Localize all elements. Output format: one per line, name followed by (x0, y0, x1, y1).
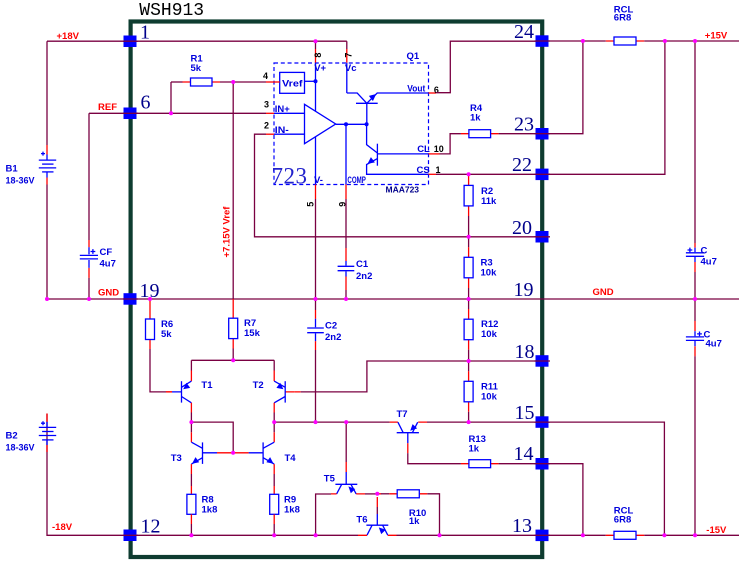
svg-text:11k: 11k (481, 196, 497, 207)
svg-text:T4: T4 (285, 453, 297, 464)
svg-text:1k: 1k (469, 443, 480, 454)
svg-text:4: 4 (263, 71, 268, 81)
svg-text:10k: 10k (481, 391, 498, 402)
svg-text:15k: 15k (244, 328, 261, 339)
svg-text:22: 22 (512, 154, 532, 176)
svg-text:B1: B1 (6, 164, 19, 175)
svg-text:23: 23 (514, 114, 534, 136)
svg-text:MAA723: MAA723 (386, 184, 420, 194)
svg-text:13: 13 (512, 515, 532, 537)
svg-text:Vref: Vref (282, 79, 303, 90)
svg-text:5k: 5k (191, 63, 202, 74)
svg-text:T7: T7 (397, 409, 408, 420)
svg-text:2n2: 2n2 (325, 332, 341, 343)
svg-text:+15V: +15V (705, 31, 728, 42)
svg-text:+7.15V Vref: +7.15V Vref (222, 206, 233, 258)
svg-text:T3: T3 (171, 453, 182, 464)
svg-text:CF: CF (100, 247, 113, 258)
svg-text:24: 24 (514, 21, 534, 43)
svg-text:C2: C2 (325, 321, 337, 332)
svg-text:REF: REF (98, 102, 117, 113)
svg-text:1k: 1k (470, 113, 481, 124)
svg-text:1k: 1k (409, 516, 420, 527)
svg-text:723: 723 (272, 164, 308, 189)
svg-text:2: 2 (264, 121, 269, 131)
svg-text:1k8: 1k8 (202, 504, 218, 515)
svg-text:3: 3 (264, 100, 269, 110)
svg-text:Q1: Q1 (407, 51, 420, 62)
svg-text:CS: CS (417, 165, 430, 176)
svg-text:IN-: IN- (275, 125, 289, 136)
svg-text:4u7: 4u7 (706, 338, 722, 349)
svg-text:Vc: Vc (345, 63, 357, 74)
svg-text:19: 19 (514, 279, 534, 301)
svg-text:2n2: 2n2 (356, 271, 372, 282)
svg-text:IN+: IN+ (275, 104, 290, 115)
svg-text:5: 5 (306, 202, 316, 207)
svg-text:4u7: 4u7 (100, 258, 116, 269)
svg-text:T2: T2 (253, 380, 264, 391)
svg-text:V+: V+ (314, 63, 326, 74)
svg-text:10k: 10k (481, 329, 498, 340)
svg-text:1: 1 (436, 165, 441, 175)
svg-text:T1: T1 (201, 380, 213, 391)
svg-text:C: C (701, 245, 708, 256)
svg-text:18-36V: 18-36V (6, 443, 35, 453)
svg-text:+18V: +18V (57, 31, 80, 42)
svg-text:5k: 5k (161, 329, 172, 340)
svg-text:CL: CL (417, 144, 430, 155)
svg-text:6R8: 6R8 (614, 13, 631, 24)
svg-text:20: 20 (512, 217, 532, 239)
svg-text:10: 10 (434, 144, 444, 154)
svg-text:GND: GND (593, 287, 614, 298)
svg-text:T6: T6 (356, 514, 367, 525)
svg-text:18-36V: 18-36V (6, 176, 35, 186)
svg-text:6: 6 (141, 92, 151, 114)
svg-text:C1: C1 (356, 259, 369, 270)
svg-text:-15V: -15V (706, 525, 727, 536)
svg-text:T5: T5 (324, 473, 336, 484)
svg-text:V-: V- (314, 175, 323, 186)
svg-text:1: 1 (140, 21, 150, 43)
svg-text:15: 15 (515, 402, 535, 424)
svg-text:14: 14 (514, 443, 534, 465)
svg-text:7: 7 (344, 53, 354, 58)
svg-text:1k8: 1k8 (284, 504, 300, 515)
svg-text:6R8: 6R8 (614, 515, 631, 526)
svg-text:B2: B2 (6, 431, 18, 442)
svg-text:18: 18 (515, 341, 535, 363)
svg-text:4u7: 4u7 (701, 256, 717, 267)
svg-text:8: 8 (313, 53, 323, 58)
svg-text:Vout: Vout (407, 84, 426, 95)
svg-text:-18V: -18V (52, 522, 73, 533)
svg-text:GND: GND (98, 288, 119, 299)
svg-text:10k: 10k (481, 267, 498, 278)
svg-text:12: 12 (141, 516, 161, 538)
svg-text:WSH913: WSH913 (139, 1, 204, 21)
svg-text:COMP: COMP (347, 175, 366, 186)
